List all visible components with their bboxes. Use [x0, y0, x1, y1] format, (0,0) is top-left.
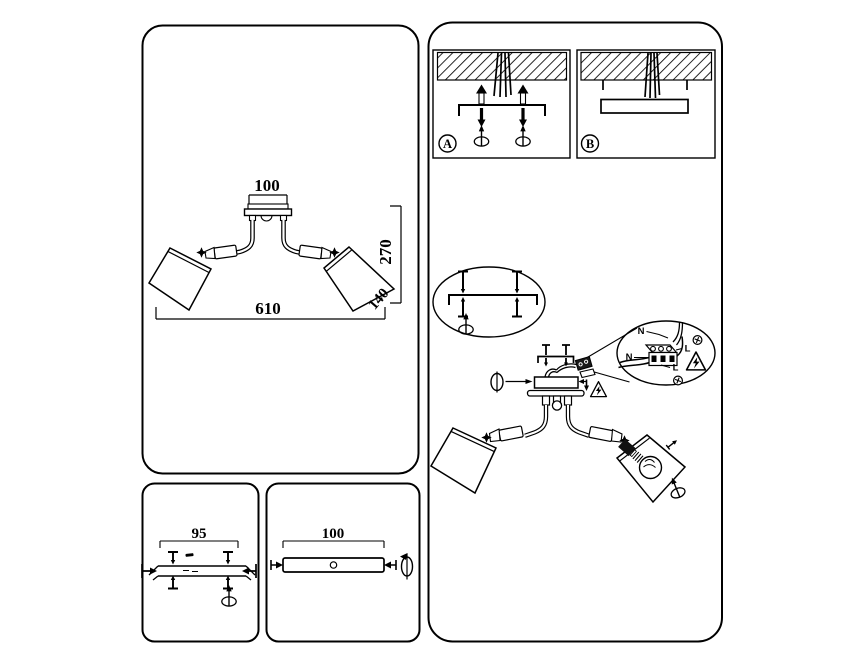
instruction-sheet: 100 610 — [0, 0, 860, 668]
canopy-wires — [545, 364, 577, 377]
pivot-screw-icon — [196, 247, 206, 257]
screw-down-arrows — [478, 108, 528, 127]
canopy-plate — [245, 209, 292, 216]
bracket-screws — [168, 552, 233, 589]
finial — [552, 401, 561, 410]
turn-screw-icon — [474, 125, 488, 147]
side-screw-left — [142, 564, 157, 578]
mount-bracket — [459, 105, 545, 116]
mount-bracket — [248, 204, 288, 209]
dim-canopy-label: 100 — [254, 176, 280, 195]
canopy-plate-drawing — [271, 553, 413, 580]
diagram-canvas: 100 610 — [0, 0, 860, 668]
plate-panel: 100 — [267, 484, 420, 642]
dim-width-label: 610 — [255, 299, 281, 318]
canopy — [535, 377, 579, 388]
step-a-label: A — [443, 137, 452, 151]
wire-label-n-top: N — [638, 326, 645, 337]
canopy-plate — [601, 100, 688, 114]
ceiling-cover — [528, 391, 585, 397]
screw-head-icon — [400, 553, 413, 580]
step-a-box: A — [433, 50, 570, 158]
bracket-panel-border — [143, 484, 259, 642]
wire-label-l-right: L — [685, 344, 691, 355]
bracket-panel: 95 — [142, 484, 259, 642]
step-b-box: B — [577, 50, 715, 158]
small-screw-icon — [666, 438, 679, 449]
install-panel: A B — [429, 23, 723, 642]
ground-screw-icon — [693, 336, 702, 345]
arm-joint-right — [589, 426, 614, 441]
dim-holes-label: 95 — [192, 526, 207, 542]
side-screw-right — [384, 560, 396, 570]
push-up-arrows — [476, 85, 529, 105]
screw-head-icon — [491, 372, 503, 393]
dim-canopy-100: 100 — [249, 176, 287, 204]
turn-screw-icon — [516, 125, 530, 147]
side-screw-left — [271, 560, 283, 570]
arm-joint-left — [499, 426, 524, 441]
arm-joint-left — [214, 245, 237, 259]
down-arrow — [584, 386, 589, 392]
insert-arrow — [526, 379, 533, 384]
wire-label-n-left: N — [626, 352, 633, 363]
canopy-plate — [283, 558, 384, 572]
wire-label-l-bottom: L — [673, 363, 679, 374]
step-b-label: B — [586, 137, 594, 151]
ground-screw-icon — [674, 376, 683, 385]
dim-plate-label: 100 — [322, 526, 345, 542]
warning-triangle-icon — [591, 382, 607, 397]
insert-arrow — [579, 379, 585, 384]
lamp-front-drawing — [149, 204, 394, 311]
mount-bracket — [538, 357, 574, 364]
bracket-detail-callout — [433, 267, 545, 337]
mount-bracket-drawing — [142, 552, 256, 607]
spec-panel: 100 610 — [143, 26, 419, 474]
arm-joint-right — [299, 245, 322, 259]
dim-drop-label: 270 — [376, 239, 395, 265]
center-dome — [261, 216, 272, 222]
terminal-block-small — [575, 357, 592, 371]
